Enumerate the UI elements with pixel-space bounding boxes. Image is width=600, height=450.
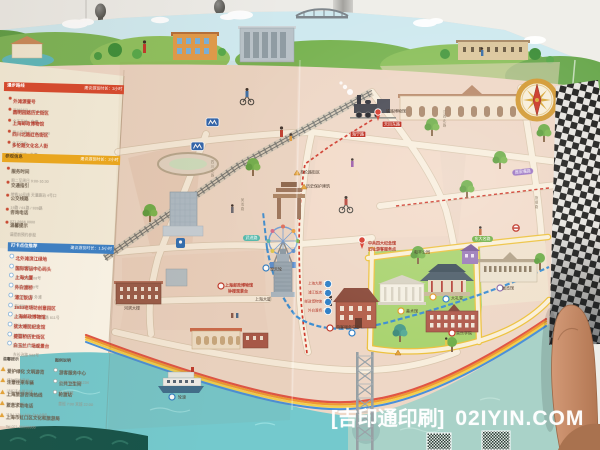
watermark: [吉印通印刷] 02IYIN.COM: [331, 402, 584, 431]
border-school-icon: [456, 40, 530, 60]
brick-mansion-illustration: [333, 288, 379, 328]
map-illustration-canvas: [0, 0, 600, 450]
border-orange-building-icon: [171, 32, 219, 60]
compass-rose-icon: [518, 81, 556, 119]
no-entry-bar: [513, 227, 518, 229]
photo-of-illustrated-tourist-map: 漫步路线 建议游览时长：3小时 外滩源壹号开放时间 9:00-17:00圆明园路…: [0, 0, 600, 450]
fold-creases: [106, 60, 300, 430]
watermark-domain: 02IYIN.COM: [455, 407, 584, 431]
border-gray-building-icon: [238, 26, 296, 62]
watermark-brand: [吉印通印刷]: [331, 402, 444, 431]
